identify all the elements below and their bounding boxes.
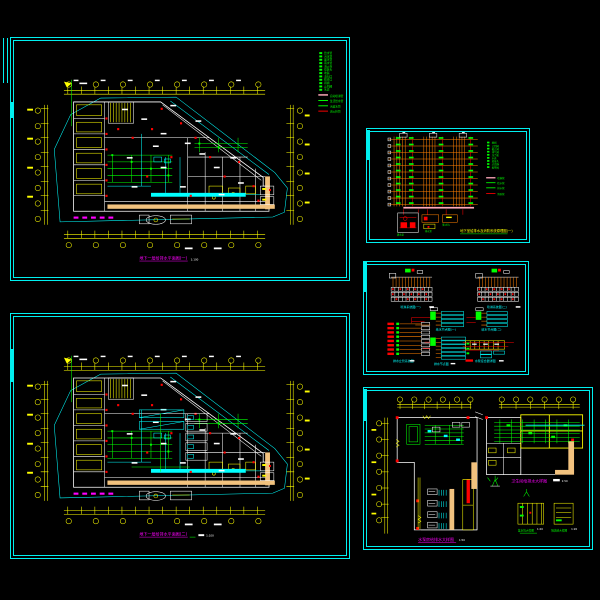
- legend-line-label: 自动喷淋管: [330, 94, 344, 98]
- axis-grid-bottom: [64, 231, 265, 250]
- site-boundary: [54, 97, 287, 222]
- small-detail-scale-1: 1:20: [537, 527, 543, 531]
- legend-line-label: 消火栓管: [330, 110, 341, 114]
- plan-base: [27, 80, 309, 250]
- plan2-title: 地下一层给排水平面图(二): [139, 531, 187, 537]
- sprinkler-branch-1: [389, 269, 432, 302]
- legend: 给水管 污水管 废水管 雨水管 消火栓 喷淋头 地漏 清扫口 检查口 闸阀 止回…: [318, 51, 343, 114]
- plan1-title: 地下一层给排水平面图(一): [139, 255, 187, 261]
- stack-list: [387, 322, 429, 355]
- details-frame: 水泵房给排水大样图 1:50: [366, 390, 590, 547]
- red-marks: [105, 108, 259, 202]
- small-detail-scale-2: 1:20: [571, 527, 577, 531]
- details-panel: 水泵房给排水大样图 1:50: [363, 387, 593, 550]
- node-detail-2: [466, 308, 507, 327]
- floor-plan-2-panel: 地下一层给排水平面图(二) 1:100: [10, 313, 350, 559]
- floor-plan-2-drawing: 地下一层给排水平面图(二) 1:100: [14, 317, 346, 555]
- pump-label: 潜水泵: [397, 233, 405, 237]
- schematic-title-4: 给水节点图(一): [436, 327, 456, 332]
- sump-units: 集水坑 排水泵: [422, 215, 457, 233]
- plant-symbol: [488, 476, 500, 486]
- axis-grid-top: [64, 80, 265, 95]
- restroom-detail: [485, 415, 584, 475]
- legend-item-label: 报警阀: [492, 165, 500, 169]
- leader-marks: [475, 412, 483, 420]
- plan2-scale: 1:100: [206, 534, 214, 538]
- sump-label: 集水坑: [442, 223, 450, 227]
- legend-line-label: 喷淋管: [497, 176, 505, 180]
- floor-plan-1-panel: 给水管 污水管 废水管 雨水管 消火栓 喷淋头 地漏 清扫口 检查口 闸阀 止回…: [10, 37, 350, 281]
- schematic-title-1: 喷淋系统图(一): [400, 304, 420, 309]
- pump-unit: 潜水泵: [397, 213, 418, 237]
- floor-plan-1-frame: 给水管 污水管 废水管 雨水管 消火栓 喷淋头 地漏 清扫口 检查口 闸阀 止回…: [13, 40, 347, 278]
- detail-left-title: 水泵房给排水大样图: [418, 536, 454, 542]
- sprinkler-branch-2: [476, 269, 519, 302]
- small-detail-title-2: 隔油池大样图: [551, 528, 567, 532]
- schematics-panel: 喷淋系统图(一) 喷淋系统图(二) 排水立管系统图: [363, 261, 529, 375]
- main-header-pipe: [403, 207, 474, 209]
- riser-pipes: [394, 137, 470, 207]
- riser-diagram-frame: 潜水泵 集水坑 排水泵 闸阀 止回阀 截止阀 排气阀: [369, 131, 527, 240]
- schematic-title-6: 排水节点图: [434, 361, 449, 366]
- axis-grid-left: [27, 105, 48, 225]
- detail-right-scale: 1:50: [562, 479, 568, 483]
- small-detail-title-1: 集水坑大样图: [518, 528, 534, 532]
- thick-walls: [107, 176, 274, 209]
- axis-grid-right: [286, 105, 309, 225]
- partial-frame-left: [3, 38, 8, 83]
- detail-right-title: 卫生间给排水大样图: [511, 477, 547, 483]
- drain-pump-label: 排水泵: [425, 229, 433, 233]
- riser-tops: [400, 132, 467, 137]
- schematics-drawing: 喷淋系统图(一) 喷淋系统图(二) 排水立管系统图: [367, 265, 525, 371]
- schematic-title-7: 水泵接合器详图: [475, 358, 496, 363]
- legend-item-label: 水表: [324, 88, 330, 92]
- riser-title: 地下室给排水及消防系统原理图(一): [460, 228, 513, 233]
- magenta-marks: [74, 217, 114, 219]
- floor-plan-2-frame: 地下一层给排水平面图(二) 1:100: [13, 316, 347, 556]
- grease-trap-detail: [554, 503, 573, 524]
- riser-diagram-panel: 潜水泵 集水坑 排水泵 闸阀 止回阀 截止阀 排气阀: [366, 128, 530, 243]
- details-drawing: 水泵房给排水大样图 1:50: [367, 391, 589, 546]
- legend-line-label: 排水管: [497, 186, 505, 190]
- schematic-title-2: 喷淋系统图(二): [487, 304, 507, 309]
- plan2-extras: [132, 410, 207, 472]
- cad-sheet: 给水管 污水管 废水管 雨水管 消火栓 喷淋头 地漏 清扫口 检查口 闸阀 止回…: [0, 0, 600, 600]
- floor-plan-1-drawing: 给水管 污水管 废水管 雨水管 消火栓 喷淋头 地漏 清扫口 检查口 闸阀 止回…: [14, 41, 346, 277]
- schematic-title-5: 给水节点图(二): [481, 327, 501, 332]
- pump-coupler-detail: [463, 341, 514, 358]
- legend-line-label: 给水管: [497, 181, 505, 185]
- green-piping: [107, 138, 247, 182]
- schematics-frame: 喷淋系统图(一) 喷淋系统图(二) 排水立管系统图: [366, 264, 526, 372]
- sump-pit-detail: [518, 489, 544, 524]
- legend-line-label: 污废水管: [330, 104, 341, 108]
- pump-room-detail: [396, 416, 477, 530]
- riser-diagram-drawing: 潜水泵 集水坑 排水泵 闸阀 止回阀 截止阀 排气阀: [370, 132, 526, 239]
- floor-tags: [388, 137, 473, 206]
- plan1-scale: 1:100: [191, 258, 199, 262]
- legend-line-label: 生活给水管: [330, 99, 344, 103]
- detail-left-scale: 1:50: [459, 538, 465, 542]
- riser-legend: 闸阀 止回阀 截止阀 排气阀 压力表 水表 软接头 过滤器 报警阀 喷淋管 给水…: [486, 141, 505, 196]
- legend-line-label: 消防管: [497, 192, 505, 196]
- floor-lines: [388, 139, 477, 204]
